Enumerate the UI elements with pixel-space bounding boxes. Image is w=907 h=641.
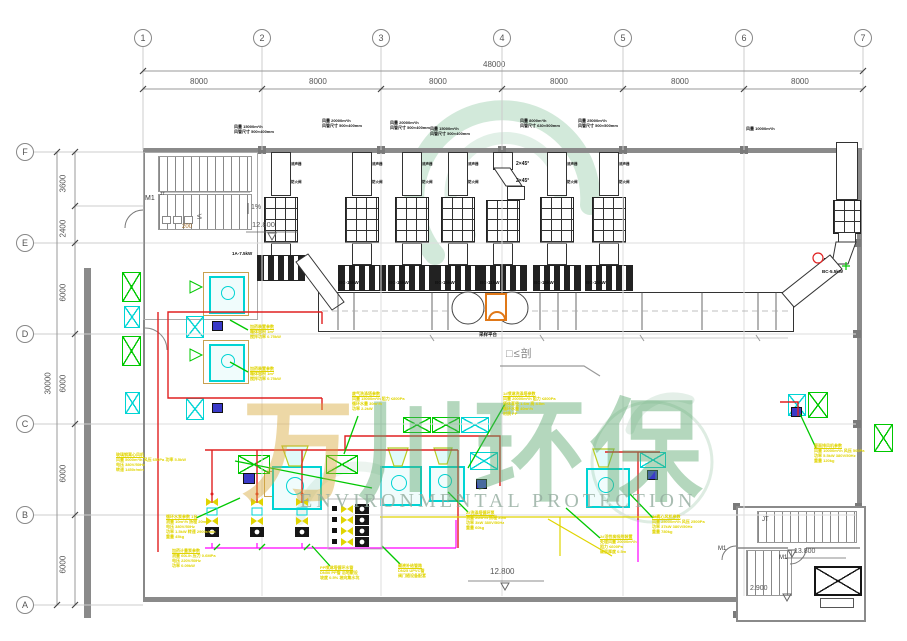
stair-flight xyxy=(158,194,252,230)
grid-row-c: C xyxy=(16,415,34,433)
fan-tag: BC-15kW xyxy=(586,280,606,285)
fan-unit xyxy=(257,255,305,281)
duct-damper xyxy=(125,392,140,414)
dim-bay-1: 8000 xyxy=(190,77,208,86)
fan-unit xyxy=(388,265,436,291)
column xyxy=(377,146,385,154)
right-stack-label: 风量 10000m³/h xyxy=(746,126,775,131)
note-200: 200 xyxy=(182,224,192,230)
grid-col-1: 1 xyxy=(134,29,152,47)
duct-damper xyxy=(186,398,204,420)
stair-mark-jt: JT xyxy=(160,191,165,196)
door-label-m1-br2: M1 xyxy=(718,546,726,552)
equipment-xbox xyxy=(814,566,862,596)
fan-tag: BC-11kW xyxy=(480,280,500,285)
duct-marker: 消声器 xyxy=(291,162,302,167)
wall-louver xyxy=(874,424,893,452)
fan-tag: BC-15kW xyxy=(339,280,359,285)
dim-bay-5: 8000 xyxy=(671,77,689,86)
filter-section xyxy=(441,197,475,243)
annotation-pipe2: 碱液补给管路DN25 UPVC管阀门随设备配套 xyxy=(398,563,426,578)
duct-marker: 防火阀 xyxy=(567,180,578,185)
dim-total-width: 48000 xyxy=(483,60,505,69)
duct-riser xyxy=(402,243,422,265)
fan-unit-right xyxy=(824,258,834,267)
level-bottom-center: 12.800 xyxy=(490,567,514,576)
annotation-fan3: 3#离心风机参数风量 25000m³/h 风压 2500Pa功率 37kW 38… xyxy=(652,514,705,534)
fan-tag: 1A-7.5kW xyxy=(232,251,252,256)
column xyxy=(853,420,861,428)
dim-bay-6: 8000 xyxy=(791,77,809,86)
annotation-dosing3: 加药装置参数箱体容积 1m³搅拌功率 0.75kW xyxy=(250,366,281,381)
stair-mark-jt-br: JT xyxy=(762,517,769,523)
dim-total-height: 30000 xyxy=(44,361,53,395)
scrubber-impeller xyxy=(221,286,235,300)
train-label-4: 风量 15000m³/h风管尺寸 500×400mm xyxy=(430,126,470,136)
grid-row-e: E xyxy=(16,234,34,252)
annotation-fan: 玻璃钢离心风机风量 5000m³/h 风压 650Pa 功率 5.5kW电压 3… xyxy=(116,452,186,472)
annotation-scrubber: 1#喷淋洗涤塔参数风量 20000m³/h 阻力 ≤800Pa塔体直径 1.6m… xyxy=(503,391,556,416)
section-mark: □≤剖 xyxy=(506,345,533,361)
annotation-pump: 循环水泵参数 1台流量 10m³/h 扬程 20m电压 380V/50Hz功率 … xyxy=(166,514,216,539)
level-br-up: 13.800 xyxy=(794,548,815,555)
slope-label: 1% xyxy=(251,204,261,211)
column xyxy=(853,330,861,338)
duct-riser xyxy=(493,243,513,265)
stair-flight xyxy=(158,156,252,192)
fan-tag: BC-15kW xyxy=(534,280,554,285)
level-br-dn: 2.900 xyxy=(750,585,768,592)
annotation-pump2: 2#洗涤塔循环泵流量 20m³/h 扬程 25m功率 3kW 380V/50Hz… xyxy=(466,510,506,530)
level-tl: 12.800 xyxy=(252,220,275,229)
duct-riser xyxy=(493,152,513,170)
legend-square xyxy=(173,216,182,224)
duct-marker: 消声器 xyxy=(372,162,383,167)
duct-riser-right xyxy=(836,142,858,200)
duct-marker: 消声器 xyxy=(468,162,479,167)
fan-tag-right: BC-5.5kW xyxy=(822,269,843,274)
fan-unit xyxy=(533,265,581,291)
duct-marker: 消声器 xyxy=(567,162,578,167)
dim-bay-4: 8000 xyxy=(550,77,568,86)
leq-symbol: ≤ xyxy=(197,211,202,221)
column xyxy=(258,146,266,154)
filter-section xyxy=(395,197,429,243)
duct-marker: 防火阀 xyxy=(372,180,383,185)
duct-riser xyxy=(507,186,525,200)
grid-col-7: 7 xyxy=(854,29,872,47)
dim-seg-6000c: 6000 xyxy=(59,455,68,483)
grid-col-3: 3 xyxy=(372,29,390,47)
legend-square xyxy=(184,216,193,224)
main-collector-duct xyxy=(318,292,794,332)
duct-riser xyxy=(271,152,291,196)
filter-section xyxy=(486,200,520,243)
dim-bay-2: 8000 xyxy=(309,77,327,86)
column xyxy=(740,146,748,154)
duct-marker: 防火阀 xyxy=(468,180,479,185)
duct-marker: 防火阀 xyxy=(291,180,302,185)
duct-riser xyxy=(599,152,619,196)
stair-flight xyxy=(757,511,857,543)
dim-seg-2400: 2400 xyxy=(59,210,68,238)
dosing-pump xyxy=(212,403,223,413)
fan-unit xyxy=(479,265,527,291)
wall-bottom xyxy=(143,597,739,602)
dim-seg-6000b: 6000 xyxy=(59,365,68,393)
dim-seg-6000a: 6000 xyxy=(59,274,68,302)
equipment-base xyxy=(820,598,854,608)
train-label-3: 风量 20000m³/h风管尺寸 500×400mm xyxy=(390,120,430,130)
annotation-dosing2: 加药装置参数箱体容积 1m³搅拌功率 0.75kW xyxy=(250,324,281,339)
filter-section xyxy=(345,197,379,243)
duct-riser xyxy=(547,243,567,265)
train-label-1: 风量 15000m³/h风管尺寸 500×400mm xyxy=(234,124,274,134)
annotation-dosing: 加药计量泵参数流量 60L/h 压力 0.6MPa电压 220V/50Hz功率 … xyxy=(172,548,216,568)
grid-col-6: 6 xyxy=(735,29,753,47)
cad-drawing-canvas: 1 2 3 4 5 6 7 F E D C B A 48000 8000 800… xyxy=(0,0,907,641)
sampling-platform-label: 采样平台 xyxy=(479,332,497,338)
bend-note: 2×45° xyxy=(516,161,529,167)
grid-row-a: A xyxy=(16,596,34,614)
wall-louver xyxy=(808,392,828,418)
grid-row-b: B xyxy=(16,506,34,524)
train-label-5: 风量 8000m³/h风管尺寸 630×500mm xyxy=(520,118,560,128)
grid-col-5: 5 xyxy=(614,29,632,47)
duct-riser xyxy=(547,152,567,196)
annotation-scrubber2: 废气洗涤塔参数风量 15000m³/h 阻力 ≤800Pa循环水量 30m³/h… xyxy=(352,391,405,411)
dosing-pump xyxy=(791,407,802,417)
door-label-m1-br: M1 xyxy=(779,555,787,561)
grid-col-4: 4 xyxy=(493,29,511,47)
wall-louver xyxy=(122,336,141,366)
dim-seg-3600: 3600 xyxy=(59,165,68,193)
annotation-carbon: 2#活性炭吸附装置处理风量 20000m³/h阻力 ≤600Pa碳层厚度 0.5… xyxy=(600,534,637,554)
fan-tag: BC-15kW xyxy=(435,280,455,285)
duct-riser xyxy=(448,152,468,196)
fan-tag: BC-15kW xyxy=(389,280,409,285)
door-label-m1: M1 xyxy=(145,195,155,202)
filter-section xyxy=(540,197,574,243)
wall-louver xyxy=(122,272,141,302)
fan-unit xyxy=(338,265,386,291)
annotation-pipe: PP喷淋塔循环水管DN50 PP管 沿地敷设坡度 0.5% 坡向集水坑 xyxy=(320,565,359,580)
duct-riser xyxy=(599,243,619,265)
dim-bay-3: 8000 xyxy=(429,77,447,86)
duct-riser xyxy=(448,243,468,265)
column xyxy=(619,146,627,154)
filter-section-right xyxy=(833,200,861,234)
fan-unit xyxy=(585,265,633,291)
grid-col-2: 2 xyxy=(253,29,271,47)
duct-marker: 消声器 xyxy=(422,162,433,167)
scrubber-impeller xyxy=(221,354,235,368)
duct-riser-right xyxy=(838,232,856,244)
grid-row-f: F xyxy=(16,143,34,161)
fan-unit xyxy=(434,265,482,291)
duct-damper xyxy=(186,316,204,338)
grid-row-d: D xyxy=(16,325,34,343)
train-label-2: 风量 20000m³/h风管尺寸 500×400mm xyxy=(322,118,362,128)
duct-marker: 消声器 xyxy=(619,162,630,167)
duct-riser xyxy=(352,243,372,265)
wall-left-outer xyxy=(84,268,91,618)
train-label-6: 风量 25000m³/h风管尺寸 500×500mm xyxy=(578,118,618,128)
legend-square xyxy=(162,216,171,224)
duct-marker: 防火阀 xyxy=(422,180,433,185)
bend-note: 2×45° xyxy=(516,178,529,184)
duct-marker: 防火阀 xyxy=(619,180,630,185)
annotation-roof-fan: 屋面排风机参数风量 10000m³/h 风压 500Pa功率 5.5kW 380… xyxy=(814,443,864,463)
duct-riser xyxy=(402,152,422,196)
filter-section xyxy=(592,197,626,243)
dosing-pump xyxy=(212,321,223,331)
duct-riser xyxy=(352,152,372,196)
duct-damper xyxy=(124,306,140,328)
dim-seg-6000d: 6000 xyxy=(59,546,68,574)
